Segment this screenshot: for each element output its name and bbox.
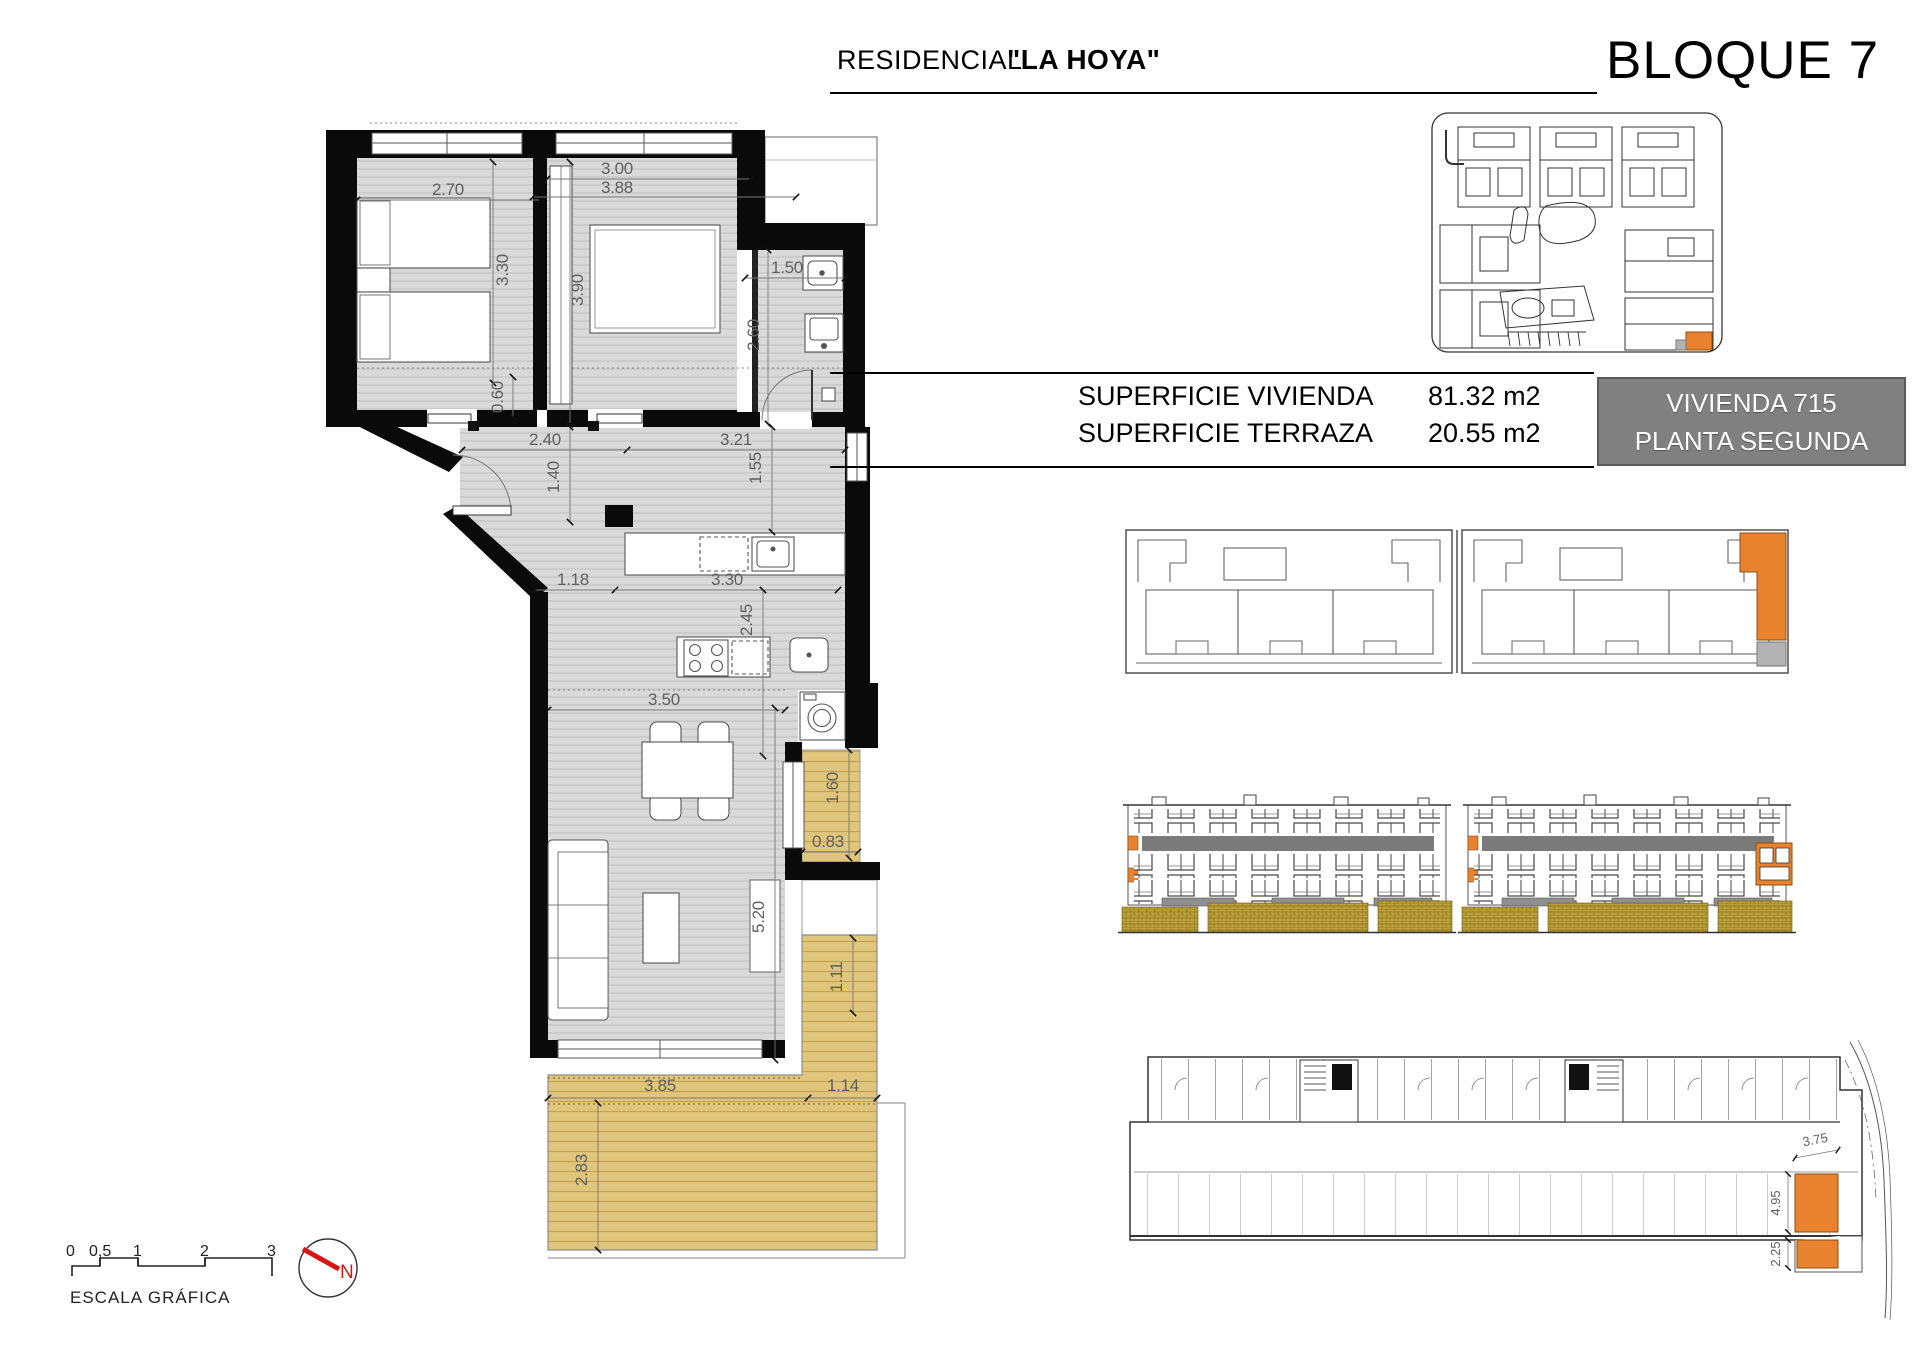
north-label: N <box>340 1262 354 1283</box>
storage-rooms <box>1150 1059 1838 1120</box>
dim-living-height: 5.20 <box>749 901 768 933</box>
dim-bath-width: 1.50 <box>771 258 803 277</box>
unit-floor: PLANTA SEGUNDA <box>1599 422 1904 460</box>
dim-bed1-height: 3.30 <box>493 254 512 286</box>
dim-kitchen-height: 2.45 <box>737 604 756 636</box>
site-plan <box>1432 113 1722 352</box>
key-plans <box>1126 530 1788 673</box>
scale-tick-05: 0,5 <box>89 1243 111 1261</box>
dim-hall-width2: 3.21 <box>720 430 752 449</box>
garage-plan: 3.75 4.95 2.25 <box>1130 1040 1892 1320</box>
plano-page: { "header": { "residencial": "RESIDENCIA… <box>0 0 1920 1359</box>
dim-terrace2-height1: 1.11 <box>827 962 846 993</box>
info-label-vivienda: SUPERFICIE VIVIENDA <box>1078 381 1374 412</box>
north-arrow: N <box>299 1239 357 1297</box>
dim-terrace1-width: 0.83 <box>812 832 844 851</box>
dim-hall-height2: 1.55 <box>746 452 765 484</box>
scale-tick-3: 3 <box>267 1243 276 1261</box>
dim-nook: 0.60 <box>488 381 507 413</box>
title-residencial: RESIDENCIAL <box>837 45 1023 76</box>
dim-bed2-width1: 3.00 <box>601 159 633 178</box>
info-label-terraza: SUPERFICIE TERRAZA <box>1078 418 1373 449</box>
info-value-terraza: 20.55 m2 <box>1428 418 1541 449</box>
highlighted-parking <box>1795 1174 1838 1232</box>
architectural-drawing: 2.70 3.30 3.00 3.88 3.90 1.50 2.60 0.60 … <box>0 0 1920 1359</box>
title-project-name: "LA HOYA" <box>1007 44 1160 76</box>
elevations <box>1118 795 1796 933</box>
dim-hall-height: 1.40 <box>544 461 563 493</box>
highlighted-terrace-keyplan <box>1757 642 1786 666</box>
dim-terrace2-height2: 2.83 <box>572 1154 591 1186</box>
scale-tick-1: 1 <box>133 1243 142 1261</box>
annex-shaft <box>765 137 877 225</box>
title-underline <box>830 92 1597 94</box>
dim-living-width: 3.50 <box>648 690 680 709</box>
dim-hall-width1: 2.40 <box>529 430 561 449</box>
highlighted-storage <box>1797 1240 1838 1268</box>
dim-terrace2-width2: 1.14 <box>827 1076 859 1095</box>
scale-tick-0: 0 <box>66 1243 75 1261</box>
info-divider-top <box>830 372 1594 374</box>
unit-number: VIVIENDA 715 <box>1599 384 1904 422</box>
dim-terrace2-width1: 3.85 <box>644 1076 676 1095</box>
scale-tick-2: 2 <box>200 1243 209 1261</box>
dim-garage-height1: 4.95 <box>1768 1190 1783 1215</box>
dim-bed2-height: 3.90 <box>568 274 587 306</box>
dim-kitchen-width1: 1.18 <box>557 570 589 589</box>
info-divider-bottom <box>830 466 1594 468</box>
dim-bed1-width: 2.70 <box>432 180 464 199</box>
title-bloque: BLOQUE 7 <box>1606 30 1879 91</box>
scale-caption: ESCALA GRÁFICA <box>70 1288 230 1308</box>
info-value-vivienda: 81.32 m2 <box>1428 381 1541 412</box>
dim-bed2-width2: 3.88 <box>601 178 633 197</box>
dim-bath-height: 2.60 <box>744 319 763 351</box>
dim-terrace1-height: 1.60 <box>823 772 842 804</box>
highlighted-unit-elevation <box>1756 843 1792 885</box>
parking-row <box>1134 1174 1834 1236</box>
dim-kitchen-width2: 3.30 <box>711 570 743 589</box>
apartment-floor-plan: 2.70 3.30 3.00 3.88 3.90 1.50 2.60 0.60 … <box>326 123 905 1258</box>
dim-garage-height2: 2.25 <box>1768 1241 1783 1266</box>
unit-identification-box: VIVIENDA 715 PLANTA SEGUNDA <box>1597 377 1906 466</box>
